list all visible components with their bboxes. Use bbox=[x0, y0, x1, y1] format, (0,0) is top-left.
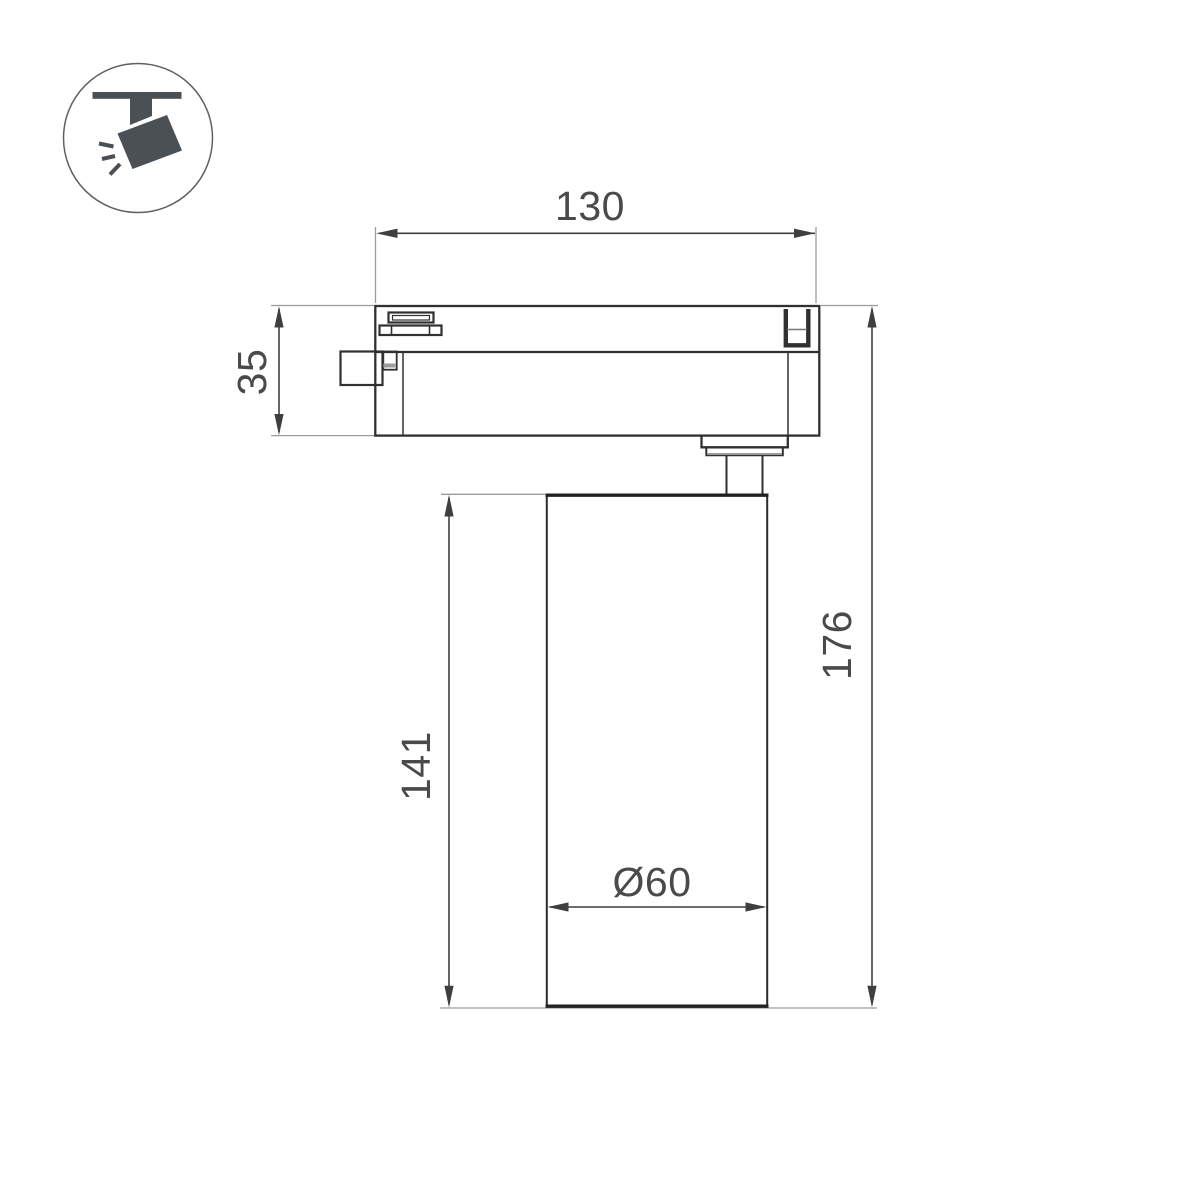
dimension-track-width: 130 bbox=[376, 183, 815, 238]
adapter-contacts bbox=[380, 313, 442, 336]
dimension-body-diameter: Ø60 bbox=[548, 859, 767, 912]
lamp-body-outline bbox=[546, 495, 769, 1006]
dim-label-diameter: Ø60 bbox=[613, 859, 692, 905]
dimension-body-height: 141 bbox=[393, 495, 454, 1008]
dimension-adapter-height: 35 bbox=[229, 306, 284, 435]
track-spotlight-icon bbox=[64, 64, 213, 213]
dim-label-130: 130 bbox=[555, 183, 625, 229]
dim-label-176: 176 bbox=[814, 610, 860, 680]
dim-label-35: 35 bbox=[229, 349, 275, 396]
adapter-clip bbox=[786, 309, 809, 345]
icon-track-bar bbox=[93, 92, 182, 99]
dim-label-141: 141 bbox=[393, 731, 439, 801]
adapter-flange bbox=[702, 436, 788, 494]
technical-drawing-page: 130 35 141 176 Ø60 bbox=[0, 0, 1200, 1200]
adapter-lever bbox=[341, 352, 397, 386]
dimension-drawing: 130 35 141 176 Ø60 bbox=[0, 0, 1200, 1200]
track-adapter-outline bbox=[341, 306, 820, 494]
dimension-overall-height: 176 bbox=[814, 306, 877, 1008]
